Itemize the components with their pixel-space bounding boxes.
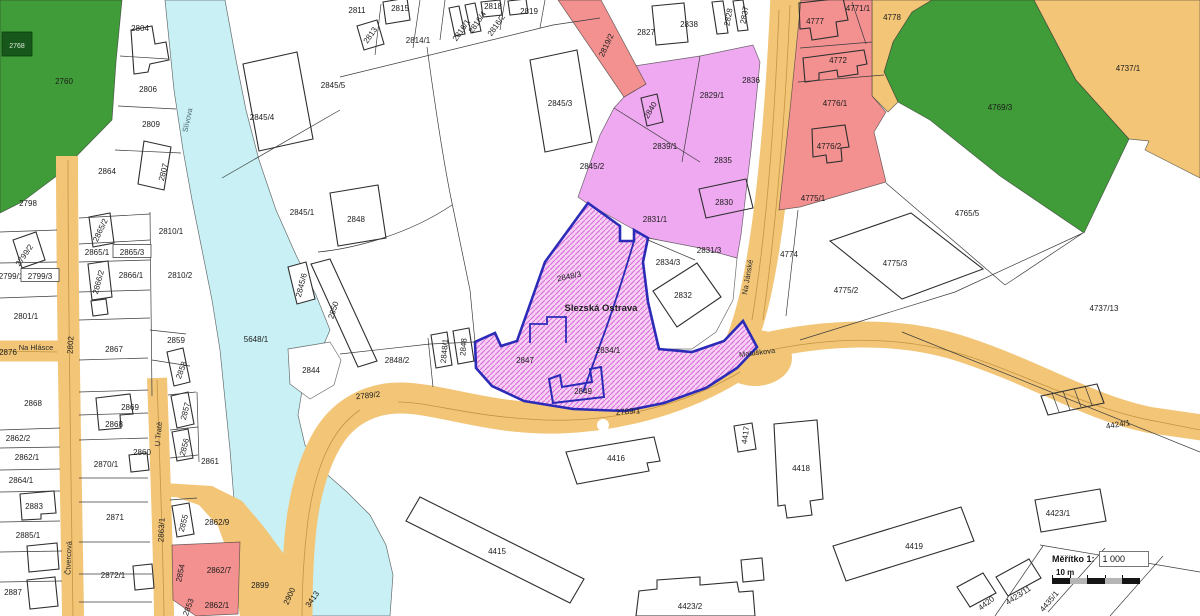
parcel-label: 2871 — [106, 513, 124, 522]
parcel-label: 2844 — [302, 366, 320, 375]
parcel-label: 4778 — [883, 13, 901, 22]
parcel-label: 2802 — [66, 335, 76, 354]
parcel-label: 2862/1 — [205, 601, 230, 610]
parcel-label: 2845/3 — [548, 99, 573, 108]
parcel-label: 2832 — [674, 291, 692, 300]
parcel-label: 2872/1 — [101, 571, 126, 580]
parcel-label: 2865/1 — [85, 248, 110, 257]
parcel-label: 2810/1 — [159, 227, 184, 236]
parcel-label: 2862/7 — [207, 566, 232, 575]
parcel-label: 2887 — [4, 588, 22, 597]
parcel-label: 4776/1 — [823, 99, 848, 108]
parcel-label: 2860 — [133, 448, 151, 457]
cadastral-map-canvas[interactable]: 276027682804280628092807286427982865/228… — [0, 0, 1200, 616]
parcel-label: 4775/2 — [834, 286, 859, 295]
parcel-label: 2831/1 — [643, 215, 668, 224]
parcel-label: 2811 — [348, 6, 366, 15]
parcel-label: 2863/1 — [156, 517, 166, 542]
parcel-label: 4776/2 — [817, 142, 842, 151]
parcel-label: 4419 — [905, 542, 923, 551]
parcel-label: 2814/1 — [406, 36, 431, 45]
street-label: Na Hlásce — [19, 343, 54, 352]
parcel-label: 2848 — [458, 337, 469, 356]
parcel-label: 2845/1 — [290, 208, 315, 217]
parcel-label: 2845/2 — [580, 162, 605, 171]
parcel-label: 2862/2 — [6, 434, 31, 443]
parcel-label: 2899 — [251, 581, 269, 590]
parcel-label: 2818 — [484, 2, 502, 11]
parcel-label: 2868 — [24, 399, 42, 408]
parcel-label: 4777 — [806, 17, 824, 26]
parcel-label: 2859 — [167, 336, 185, 345]
parcel-label: 2815 — [391, 4, 409, 13]
scale-widget: Měřítko 1: 1 000 10 m — [1052, 551, 1156, 584]
parcel-label: 4737/13 — [1090, 304, 1119, 313]
parcel-label: 4415 — [488, 547, 506, 556]
parcel-label: 2861 — [201, 457, 219, 466]
scale-bar — [1052, 578, 1140, 584]
parcel-label: 2876 — [0, 348, 17, 357]
parcel-label: 2834/3 — [656, 258, 681, 267]
parcel-label: 2839/1 — [653, 142, 678, 151]
parcel-label: 2849 — [574, 387, 592, 396]
scale-bar-segment — [1070, 578, 1088, 584]
scale-bar-segment — [1087, 578, 1105, 584]
parcel-label: 2798 — [19, 199, 37, 208]
parcel-label: 4771/1 — [846, 4, 871, 13]
parcel-label: 2869 — [121, 403, 139, 412]
parcel-label: 2806 — [139, 85, 157, 94]
parcel-label: 2867 — [105, 345, 123, 354]
street-label: Čtvercová — [63, 540, 73, 575]
parcel-label: 2789/1 — [616, 406, 642, 417]
parcel-label: 2866/1 — [119, 271, 144, 280]
parcel-label: 2848 — [347, 215, 365, 224]
parcel-label: 2819 — [520, 7, 538, 16]
parcel-label: 2885/1 — [16, 531, 41, 540]
parcel-label: 4769/3 — [988, 103, 1013, 112]
parcel-label: 2827 — [637, 28, 655, 37]
parcel-label: 2848/2 — [385, 356, 410, 365]
parcel-label: 4737/1 — [1116, 64, 1141, 73]
parcel-label: 4775/1 — [801, 194, 826, 203]
parcel-label: 2799/3 — [28, 272, 53, 281]
parcel-label: 2862/9 — [205, 518, 230, 527]
cadastral-map-viewport: 276027682804280628092807286427982865/228… — [0, 0, 1200, 616]
parcel-label: 4423/2 — [678, 602, 703, 611]
scale-bar-unit-label: 10 m — [1056, 568, 1156, 577]
parcel-label: 2809 — [142, 120, 160, 129]
parcel-label: 2830 — [715, 198, 733, 207]
parcel-label: 2862/1 — [15, 453, 40, 462]
parcel-label: 2810/2 — [168, 271, 193, 280]
parcel-label: 4774 — [780, 250, 798, 259]
scale-input[interactable]: 1 000 — [1099, 551, 1149, 567]
parcel-label: 2883 — [25, 502, 43, 511]
parcel-label: 5648/1 — [244, 335, 269, 344]
parcel-label: 2760 — [55, 77, 73, 86]
parcel-label: 2829/1 — [700, 91, 725, 100]
parcel-label: 2831/3 — [697, 246, 722, 255]
parcel-label: 4423/1 — [1046, 509, 1071, 518]
scale-bar-segment — [1105, 578, 1123, 584]
parcel-label: 2845/4 — [250, 113, 275, 122]
parcel-label: 4775/3 — [883, 259, 908, 268]
parcel-label: 2801/1 — [14, 312, 39, 321]
parcel-label: 2864 — [98, 167, 116, 176]
parcel-label: 2847 — [516, 356, 534, 365]
parcel-label: 2768 — [9, 43, 25, 50]
parcel-label: 2838 — [680, 20, 698, 29]
parcel-label: 2870/1 — [94, 460, 119, 469]
scale-bar-segment — [1122, 578, 1140, 584]
parcel-label: 2804 — [131, 24, 149, 33]
area-name-label: Slezská Ostrava — [565, 303, 639, 314]
parcel-label: 2865/3 — [120, 248, 145, 257]
parcel-label: 2864/1 — [9, 476, 34, 485]
parcel-label: 4772 — [829, 56, 847, 65]
parcel-label: 4416 — [607, 454, 625, 463]
parcel-label: 4765/5 — [955, 209, 980, 218]
scale-bar-segment — [1052, 578, 1070, 584]
parcel-label: 2834/1 — [596, 346, 621, 355]
parcel-label: 2845/5 — [321, 81, 346, 90]
parcel-label: 2835 — [714, 156, 732, 165]
parcel-label: 2836 — [742, 76, 760, 85]
parcel-label: 4418 — [792, 464, 810, 473]
parcel-label: 2868 — [105, 420, 123, 429]
parcel-label: 2799/1 — [0, 272, 24, 281]
road-marker-dot — [597, 419, 609, 431]
scale-label: Měřítko 1: — [1052, 554, 1095, 564]
